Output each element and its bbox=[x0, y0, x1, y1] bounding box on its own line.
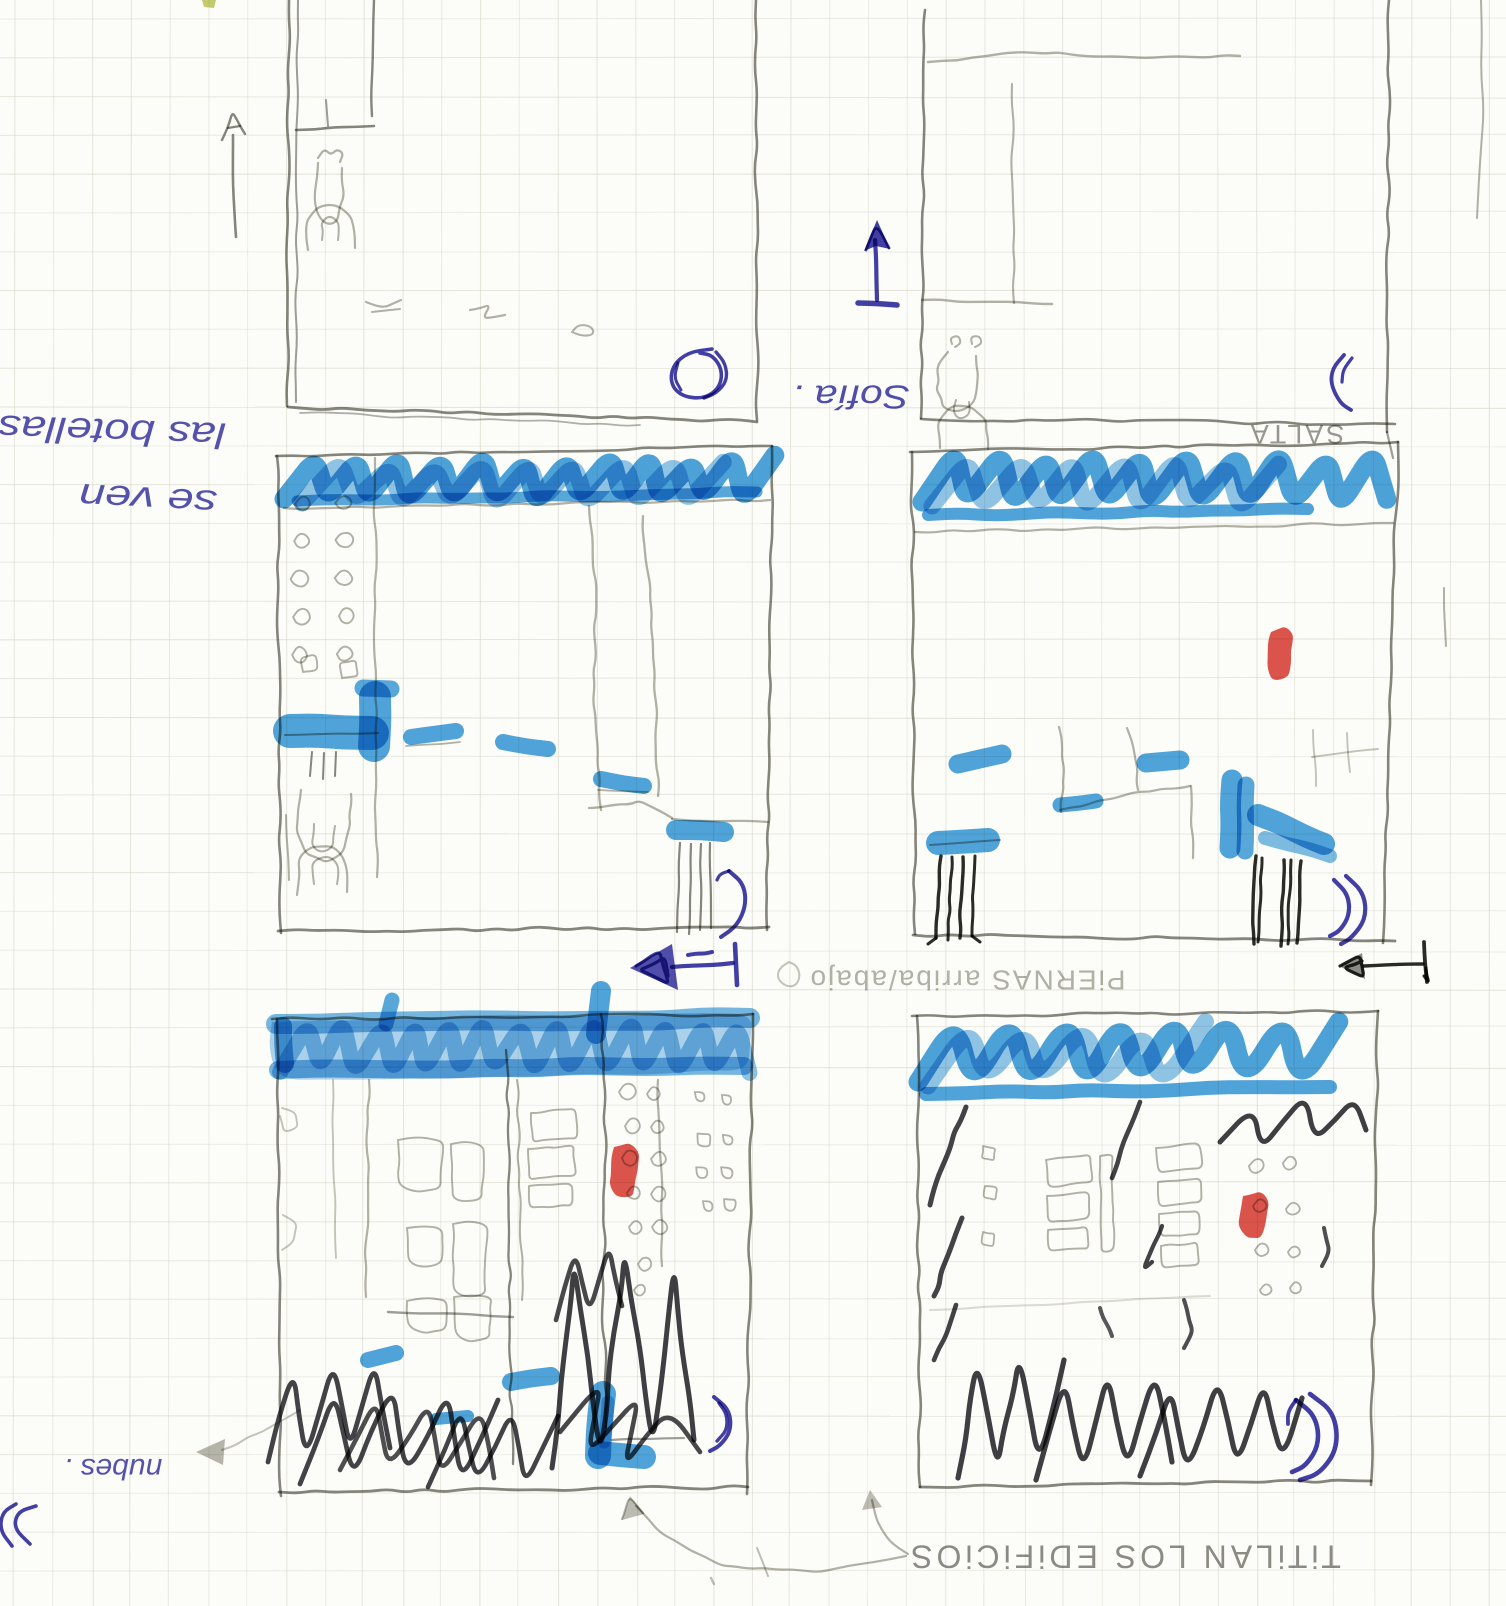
svg-text:TiTiLAN LOS EDiFiCiOS: TiTiLAN LOS EDiFiCiOS bbox=[907, 1539, 1341, 1575]
svg-text:PiERNAS arriba/abajo: PiERNAS arriba/abajo bbox=[808, 965, 1125, 996]
svg-text:se ven: se ven bbox=[78, 476, 218, 524]
svg-text:Sofía .: Sofía . bbox=[792, 378, 910, 415]
svg-text:las botellas: las botellas bbox=[0, 408, 227, 457]
svg-text:nubes .: nubes . bbox=[64, 1452, 162, 1485]
